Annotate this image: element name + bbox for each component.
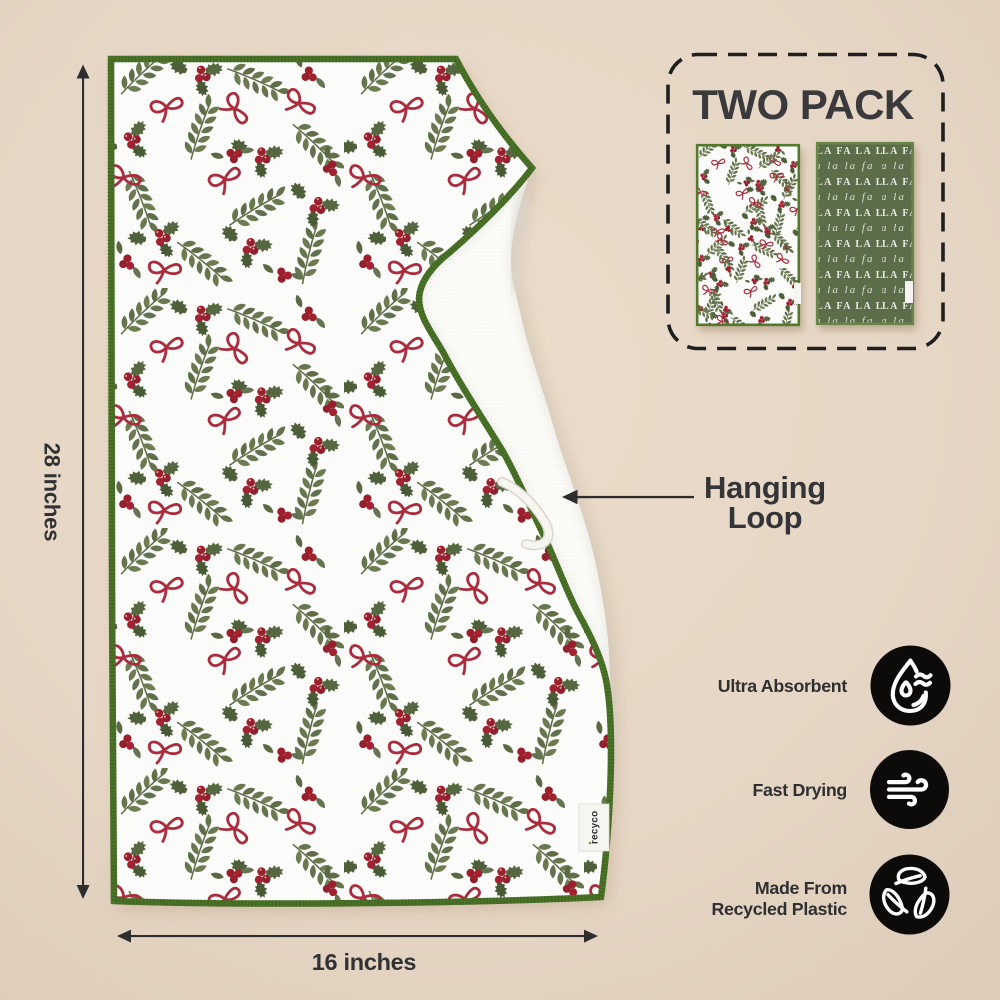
svg-text:28 inches: 28 inches: [40, 443, 65, 541]
svg-text:Loop: Loop: [728, 500, 803, 535]
svg-text:Fast Drying: Fast Drying: [752, 780, 847, 800]
svg-text:recyco: recyco: [590, 811, 601, 844]
svg-text:Made From: Made From: [755, 878, 847, 898]
svg-text:16 inches: 16 inches: [312, 949, 417, 975]
svg-text:Recycled Plastic: Recycled Plastic: [711, 899, 847, 919]
svg-text:TWO PACK: TWO PACK: [692, 81, 914, 128]
svg-text:Ultra Absorbent: Ultra Absorbent: [718, 676, 848, 696]
